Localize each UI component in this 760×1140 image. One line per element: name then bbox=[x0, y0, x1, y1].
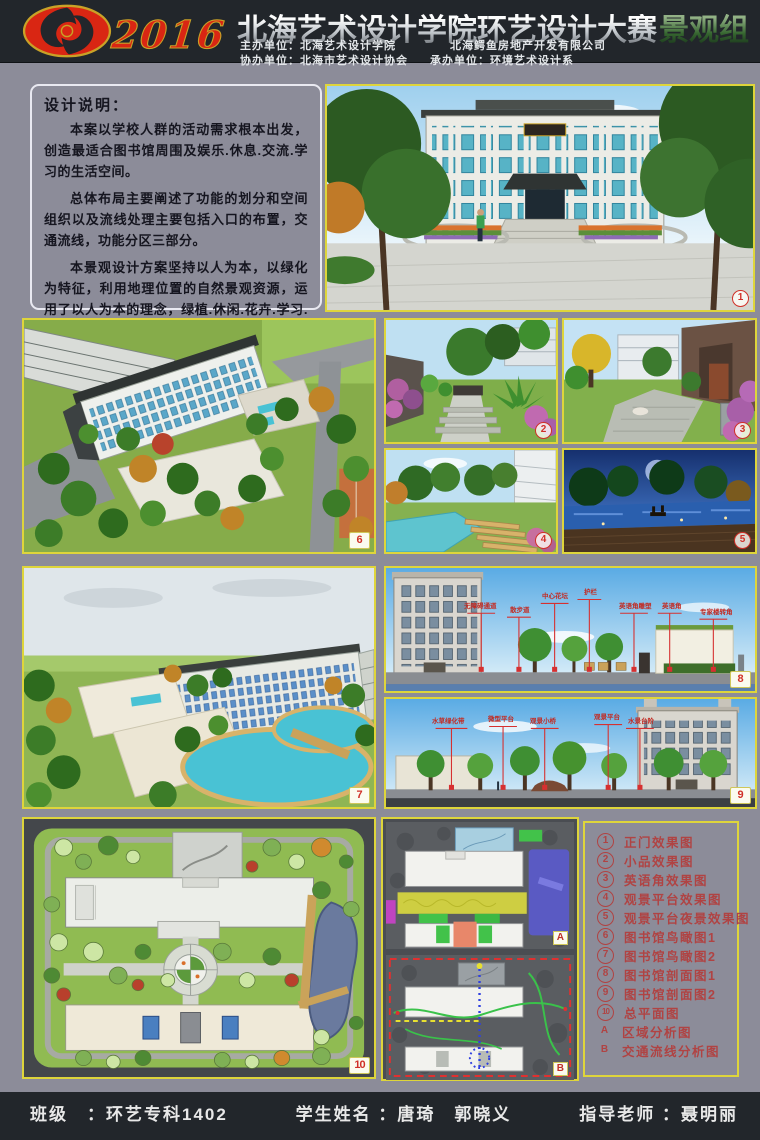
legend-label: 总平面图 bbox=[624, 1003, 680, 1022]
circulation-analysis-badge: B bbox=[553, 1062, 568, 1076]
section-1-illustration bbox=[386, 568, 755, 691]
aerial-2-illustration bbox=[24, 568, 374, 807]
zone-analysis-badge: A bbox=[553, 931, 568, 945]
callout-label: 英语角 bbox=[662, 604, 682, 611]
legend-label: 英语角效果图 bbox=[624, 870, 708, 889]
logo-year: 2016 bbox=[110, 12, 228, 57]
render-7-badge: 7 bbox=[349, 787, 370, 804]
legend-item: A区域分析图 bbox=[597, 1022, 737, 1041]
legend-item: 2小品效果图 bbox=[597, 851, 737, 870]
render-6-badge: 6 bbox=[349, 532, 370, 549]
callout-label: 水景台阶 bbox=[628, 719, 654, 726]
legend-number: 8 bbox=[597, 966, 614, 983]
callout-label: 中心花坛 bbox=[542, 594, 568, 601]
legend-number: 2 bbox=[597, 852, 614, 869]
render-section-2: 水草绿化带 微型平台 观景小桥 观景平台 水景台阶 9 bbox=[384, 697, 757, 809]
render-circulation-analysis: B bbox=[386, 955, 574, 1080]
english-corner-illustration bbox=[564, 320, 755, 442]
callout-label: 无障碍通道 bbox=[464, 604, 497, 611]
render-3-badge: 3 bbox=[734, 422, 751, 439]
legend-number: 1 bbox=[597, 833, 614, 850]
design-description-panel: 设计说明： 本案以学校人群的活动需求根本出发，创造最适合图书馆周围及娱乐.休息.… bbox=[30, 84, 322, 310]
description-paragraph-1: 本案以学校人群的活动需求根本出发，创造最适合图书馆周围及娱乐.休息.交流.学习的… bbox=[44, 119, 308, 182]
legend-item: 4观景平台效果图 bbox=[597, 889, 737, 908]
host-value: 北海艺术设计学院 bbox=[300, 40, 396, 52]
render-zone-analysis: A bbox=[386, 822, 574, 949]
header-bar: 2016 北海艺术设计学院环艺设计大赛景观组 主办单位：北海艺术设计学院北海鳄鱼… bbox=[0, 0, 760, 63]
legend-item: 1正门效果图 bbox=[597, 832, 737, 851]
undertaker-value: 环境艺术设计系 bbox=[490, 55, 574, 67]
render-4-badge: 4 bbox=[535, 532, 552, 549]
legend-label: 图书馆剖面图2 bbox=[624, 984, 716, 1003]
zone-analysis-illustration bbox=[386, 822, 574, 949]
master-plan-illustration bbox=[24, 819, 374, 1077]
legend-label: 观景平台效果图 bbox=[624, 889, 722, 908]
callout-label: 专家楼转角 bbox=[700, 610, 733, 617]
garden-feature-illustration bbox=[386, 320, 556, 442]
callout-label: 英语角雕塑 bbox=[619, 604, 652, 611]
legend-number: 6 bbox=[597, 928, 614, 945]
render-aerial-2: 7 bbox=[22, 566, 376, 809]
description-heading: 设计说明： bbox=[44, 94, 308, 115]
legend-number: 10 bbox=[597, 1004, 614, 1021]
legend-panel: 1正门效果图 2小品效果图 3英语角效果图 4观景平台效果图 5观景平台夜景效果… bbox=[583, 821, 739, 1077]
legend-item: 8图书馆剖面图1 bbox=[597, 965, 737, 984]
legend-number: 3 bbox=[597, 871, 614, 888]
teacher-value: 聂明丽 bbox=[681, 1105, 738, 1124]
callout-label: 散步道 bbox=[510, 608, 530, 615]
render-1-badge: 1 bbox=[732, 290, 749, 307]
render-10-badge: 10 bbox=[349, 1057, 370, 1074]
legend-item: 5观景平台夜景效果图 bbox=[597, 908, 737, 927]
render-platform-day: 4 bbox=[384, 448, 558, 554]
callout-label: 观景平台 bbox=[594, 715, 620, 722]
description-paragraph-2: 总体布局主要阐述了功能的划分和空间组织以及流线处理主要包括入口的布置，交通流线，… bbox=[44, 188, 308, 251]
legend-number: B bbox=[597, 1043, 612, 1058]
legend-label: 交通流线分析图 bbox=[622, 1041, 720, 1060]
phoenix-swirl-logo-icon bbox=[20, 3, 114, 59]
legend-number: 9 bbox=[597, 985, 614, 1002]
organizer-line-1: 主办单位：北海艺术设计学院北海鳄鱼房地产开发有限公司 bbox=[240, 37, 606, 53]
students-label: 学生姓名 ： bbox=[296, 1105, 398, 1124]
main-gate-illustration bbox=[327, 86, 753, 310]
render-5-badge: 5 bbox=[734, 532, 751, 549]
footer-bar: 班级 ：环艺专科1402 学生姓名 ：唐琦 郭晓义 指导老师 ：聂明丽 bbox=[0, 1092, 760, 1140]
organizer-line-2: 协办单位：北海市艺术设计协会承办单位：环境艺术设计系 bbox=[240, 52, 574, 68]
competition-poster: 2016 北海艺术设计学院环艺设计大赛景观组 主办单位：北海艺术设计学院北海鳄鱼… bbox=[0, 0, 760, 1140]
callout-label: 观景小桥 bbox=[530, 719, 556, 726]
callout-label: 水草绿化带 bbox=[432, 719, 465, 726]
legend-item: 6图书馆鸟瞰图1 bbox=[597, 927, 737, 946]
legend-item: 10总平面图 bbox=[597, 1003, 737, 1022]
aerial-1-illustration bbox=[24, 320, 374, 552]
render-master-plan: 10 bbox=[22, 817, 376, 1079]
platform-day-illustration bbox=[386, 450, 556, 552]
undertaker-label: 承办单位： bbox=[430, 55, 490, 67]
render-2-badge: 2 bbox=[535, 422, 552, 439]
legend-item: 7图书馆鸟瞰图2 bbox=[597, 946, 737, 965]
class-value: 环艺专科1402 bbox=[106, 1105, 228, 1124]
callout-label: 微型平台 bbox=[488, 717, 514, 724]
students-value: 唐琦 郭晓义 bbox=[397, 1105, 511, 1124]
legend-label: 区域分析图 bbox=[622, 1022, 692, 1041]
legend-item: 9图书馆剖面图2 bbox=[597, 984, 737, 1003]
render-main-gate: 1 bbox=[325, 84, 755, 312]
callout-label: 护栏 bbox=[584, 590, 597, 597]
render-aerial-1: 6 bbox=[22, 318, 376, 554]
render-platform-night: 5 bbox=[562, 448, 757, 554]
legend-label: 图书馆鸟瞰图1 bbox=[624, 927, 716, 946]
legend-label: 图书馆鸟瞰图2 bbox=[624, 946, 716, 965]
students-info: 学生姓名 ：唐琦 郭晓义 bbox=[296, 1100, 512, 1125]
coorganizer-value: 北海市艺术设计协会 bbox=[300, 55, 408, 67]
legend-label: 观景平台夜景效果图 bbox=[624, 908, 750, 927]
teacher-info: 指导老师 ：聂明丽 bbox=[579, 1100, 738, 1125]
render-garden-feature: 2 bbox=[384, 318, 558, 444]
teacher-label: 指导老师 ： bbox=[579, 1105, 681, 1124]
legend-item: 3英语角效果图 bbox=[597, 870, 737, 889]
legend-number: 5 bbox=[597, 909, 614, 926]
render-english-corner: 3 bbox=[562, 318, 757, 444]
render-section-1: 无障碍通道 散步道 中心花坛 护栏 英语角雕塑 英语角 专家楼转角 8 bbox=[384, 566, 757, 693]
legend-number: 7 bbox=[597, 947, 614, 964]
circulation-analysis-illustration bbox=[386, 955, 574, 1080]
legend-label: 正门效果图 bbox=[624, 832, 694, 851]
platform-night-illustration bbox=[564, 450, 755, 552]
analysis-diagrams-panel: A bbox=[381, 817, 579, 1081]
render-9-badge: 9 bbox=[730, 787, 751, 804]
legend-number: A bbox=[597, 1024, 612, 1039]
coorganizer-label: 协办单位： bbox=[240, 55, 300, 67]
class-info: 班级 ：环艺专科1402 bbox=[30, 1100, 228, 1125]
section-2-illustration bbox=[386, 699, 755, 807]
legend-item: B交通流线分析图 bbox=[597, 1041, 737, 1060]
legend-label: 小品效果图 bbox=[624, 851, 694, 870]
title-group: 景观组 bbox=[659, 14, 749, 47]
class-label: 班级 ： bbox=[30, 1105, 106, 1124]
legend-label: 图书馆剖面图1 bbox=[624, 965, 716, 984]
host-value-2: 北海鳄鱼房地产开发有限公司 bbox=[450, 40, 606, 52]
legend-list: 1正门效果图 2小品效果图 3英语角效果图 4观景平台效果图 5观景平台夜景效果… bbox=[585, 823, 737, 1061]
render-8-badge: 8 bbox=[730, 671, 751, 688]
legend-number: 4 bbox=[597, 890, 614, 907]
host-label: 主办单位： bbox=[240, 40, 300, 52]
